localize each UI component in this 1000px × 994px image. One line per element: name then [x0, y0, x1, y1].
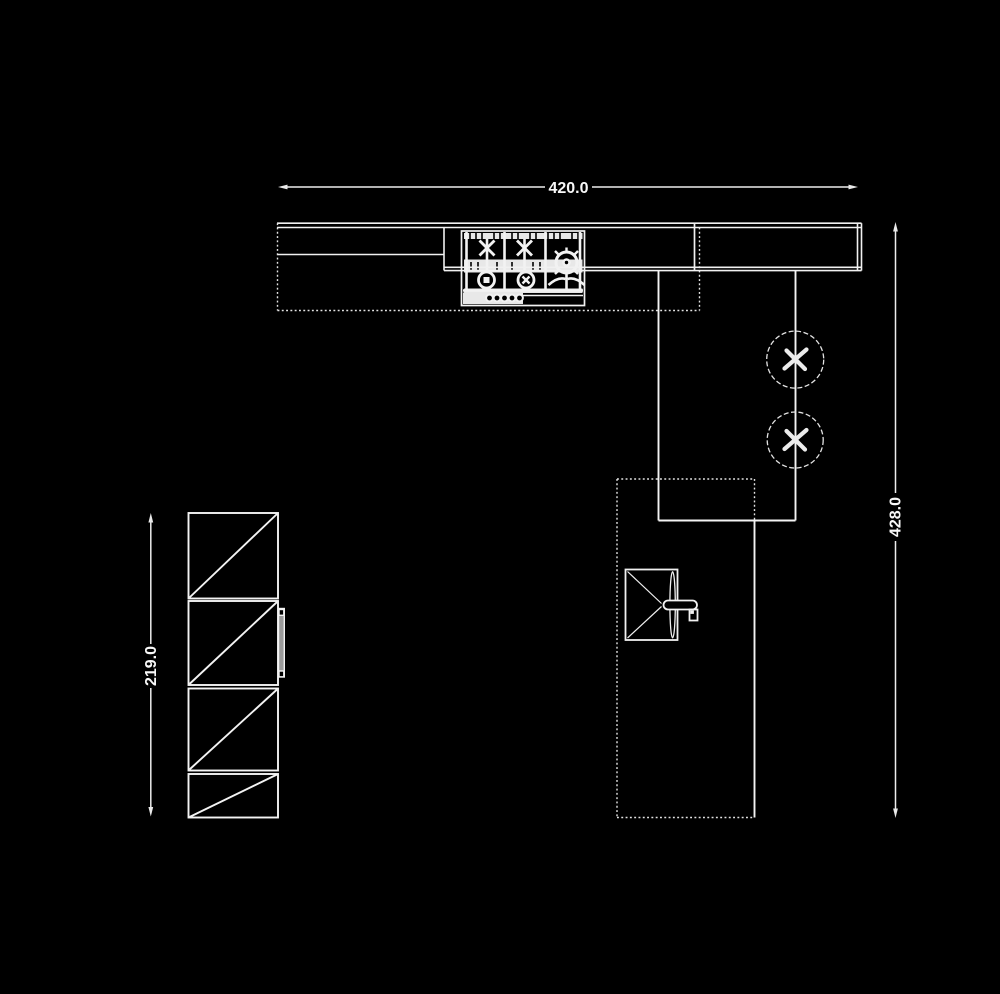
- svg-text:420.0: 420.0: [548, 180, 588, 197]
- svg-text:428.0: 428.0: [888, 497, 905, 537]
- svg-text:219.0: 219.0: [143, 646, 160, 686]
